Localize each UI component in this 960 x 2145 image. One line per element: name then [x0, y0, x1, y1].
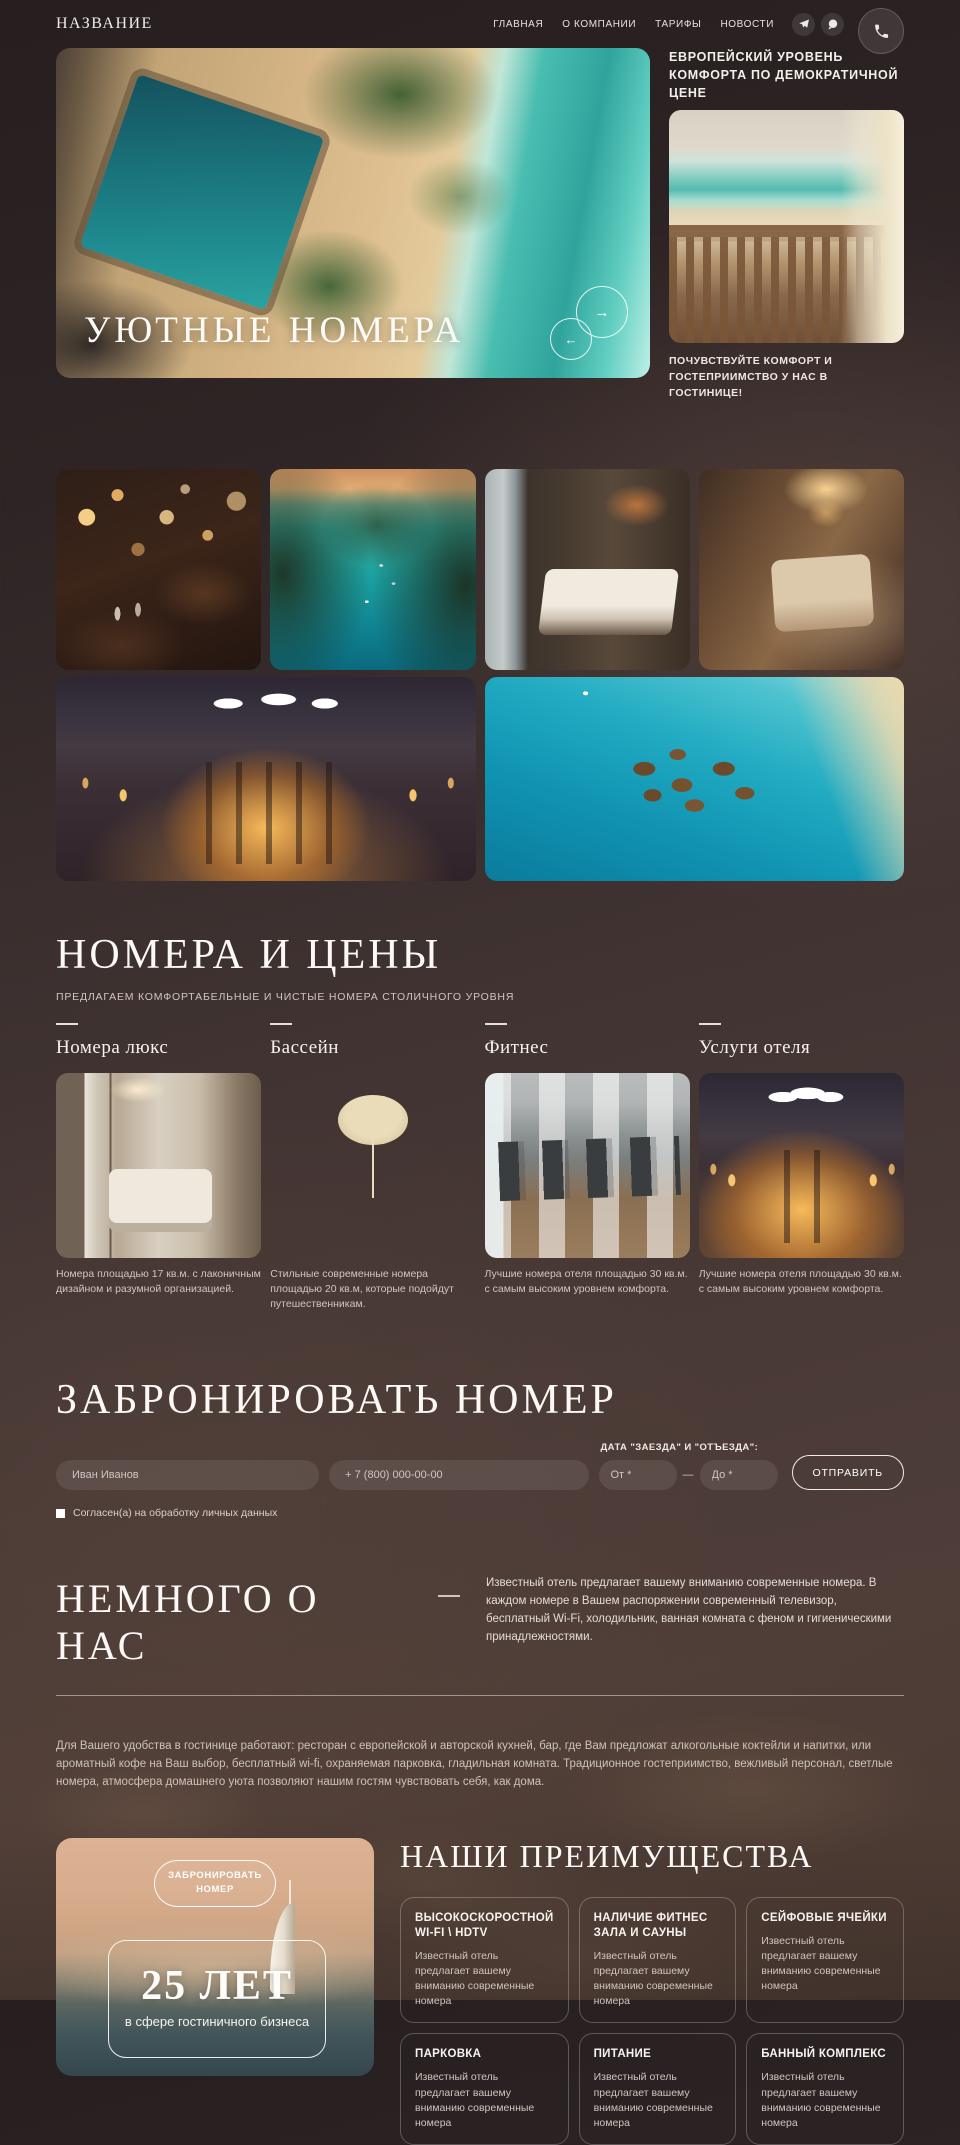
hero-right-title: ЕВРОПЕЙСКИЙ УРОВЕНЬ КОМФОРТА ПО ДЕМОКРАТ…: [669, 48, 904, 102]
gallery-row-1: [56, 469, 904, 670]
advantage-title: БАННЫЙ КОМПЛЕКС: [761, 2047, 889, 2062]
telegram-icon: [798, 18, 810, 30]
hero-right-column: ЕВРОПЕЙСКИЙ УРОВЕНЬ КОМФОРТА ПО ДЕМОКРАТ…: [669, 48, 904, 402]
advantage-card-fitness: НАЛИЧИЕ ФИТНЕС ЗАЛА И САУНЫ Известный от…: [579, 1897, 737, 2024]
room-cards: Номера люкс Номера площадью 17 кв.м. с л…: [56, 1023, 904, 1313]
date-to-input[interactable]: [700, 1460, 778, 1490]
nav-item-rates[interactable]: ТАРИФЫ: [655, 19, 701, 30]
advantages-section: НАШИ ПРЕИМУЩЕСТВА ВЫСОКОСКОРОСТНОЙ WI-FI…: [400, 1838, 904, 2145]
card-dash: [699, 1023, 721, 1025]
room-card-image-gym: [485, 1073, 690, 1258]
gallery-image-entrance[interactable]: [56, 677, 476, 881]
dates-label: ДАТА "ЗАЕЗДА" И "ОТЪЕЗДА":: [601, 1442, 778, 1453]
room-card-desc: Стильные современные номера площадью 20 …: [270, 1267, 475, 1313]
rooms-section: НОМЕРА И ЦЕНЫ ПРЕДЛАГАЕМ КОМФОРТАБЕЛЬНЫЕ…: [56, 931, 904, 1313]
booking-section: ЗАБРОНИРОВАТЬ НОМЕР ДАТА "ЗАЕЗДА" И "ОТЪ…: [56, 1376, 904, 1519]
advantage-title: НАЛИЧИЕ ФИТНЕС ЗАЛА И САУНЫ: [594, 1911, 722, 1941]
section-divider: [56, 1695, 904, 1696]
room-card-desc: Номера площадью 17 кв.м. с лаконичным ди…: [56, 1267, 261, 1297]
room-card-desc: Лучшие номера отеля площадью 30 кв.м. с …: [699, 1267, 904, 1297]
room-card-image-pool: [270, 1073, 475, 1258]
gallery-image-bedroom[interactable]: [485, 469, 690, 670]
whatsapp-button[interactable]: [821, 13, 844, 36]
about-dash: [438, 1595, 460, 1597]
submit-button[interactable]: ОТПРАВИТЬ: [792, 1455, 905, 1490]
telegram-button[interactable]: [792, 13, 815, 36]
advantage-desc: Известный отель предлагает вашему вниман…: [594, 1949, 722, 2010]
advantage-title: СЕЙФОВЫЕ ЯЧЕЙКИ: [761, 1911, 889, 1926]
pool-shape: [79, 74, 323, 309]
whatsapp-icon: [827, 18, 839, 30]
room-card-pool[interactable]: Бассейн Стильные современные номера площ…: [270, 1023, 475, 1313]
card-dash: [485, 1023, 507, 1025]
advantages-grid: ВЫСОКОСКОРОСТНОЙ WI-FI \ HDTV Известный …: [400, 1897, 904, 2145]
advantages-title: НАШИ ПРЕИМУЩЕСТВА: [400, 1838, 904, 1875]
header: НАЗВАНИЕ ГЛАВНАЯ О КОМПАНИИ ТАРИФЫ НОВОС…: [56, 0, 904, 48]
about-row: НЕМНОГО О НАС Известный отель предлагает…: [56, 1575, 904, 1669]
card-dash: [270, 1023, 292, 1025]
hero-slide-title: УЮТНЫЕ НОМЕРА: [84, 309, 464, 352]
phone-icon: [873, 23, 890, 40]
rooms-subtitle: ПРЕДЛАГАЕМ КОМФОРТАБЕЛЬНЫЕ И ЧИСТЫЕ НОМЕ…: [56, 991, 904, 1003]
advantage-desc: Известный отель предлагает вашему вниман…: [761, 1934, 889, 1995]
date-from-input[interactable]: [599, 1460, 677, 1490]
promo-book-button[interactable]: ЗАБРОНИРОВАТЬ НОМЕР: [154, 1860, 276, 1907]
advantage-desc: Известный отель предлагает вашему вниман…: [761, 2070, 889, 2131]
hero-right-caption: ПОЧУВСТВУЙТЕ КОМФОРТ И ГОСТЕПРИИМСТВО У …: [669, 354, 904, 401]
carousel-prev-button[interactable]: ←: [550, 318, 592, 360]
consent-row[interactable]: Согласен(а) на обработку личных данных: [56, 1507, 904, 1519]
social-buttons: [792, 13, 844, 36]
room-card-image-lux: [56, 1073, 261, 1258]
advantage-title: ВЫСОКОСКОРОСТНОЙ WI-FI \ HDTV: [415, 1911, 554, 1941]
advantage-desc: Известный отель предлагает вашему вниман…: [594, 2070, 722, 2131]
gallery-image-suite[interactable]: [699, 469, 904, 670]
room-card-title: Фитнес: [485, 1037, 690, 1059]
advantage-card-wifi: ВЫСОКОСКОРОСТНОЙ WI-FI \ HDTV Известный …: [400, 1897, 569, 2024]
advantage-card-food: ПИТАНИЕ Известный отель предлагает вашем…: [579, 2033, 737, 2145]
gallery: [56, 469, 904, 881]
promo-years-box: 25 ЛЕТ в сфере гостиничного бизнеса: [108, 1940, 326, 2058]
advantage-desc: Известный отель предлагает вашему вниман…: [415, 1949, 554, 2010]
about-lead: Известный отель предлагает вашему вниман…: [486, 1575, 904, 1646]
room-card-fitness[interactable]: Фитнес Лучшие номера отеля площадью 30 к…: [485, 1023, 690, 1313]
advantage-title: ПАРКОВКА: [415, 2047, 554, 2062]
gallery-image-lagoon[interactable]: [270, 469, 475, 670]
room-card-desc: Лучшие номера отеля площадью 30 кв.м. с …: [485, 1267, 690, 1297]
room-card-title: Услуги отеля: [699, 1037, 904, 1059]
gallery-row-2: [56, 677, 904, 881]
advantage-title: ПИТАНИЕ: [594, 2047, 722, 2062]
gallery-image-bungalows[interactable]: [485, 677, 905, 881]
nav-item-about[interactable]: О КОМПАНИИ: [562, 19, 636, 30]
dates-group: ДАТА "ЗАЕЗДА" И "ОТЪЕЗДА": —: [599, 1442, 778, 1490]
name-input[interactable]: [56, 1460, 319, 1490]
gallery-image-restaurant[interactable]: [56, 469, 261, 670]
date-range-separator: —: [683, 1469, 694, 1481]
room-card-title: Номера люкс: [56, 1037, 261, 1059]
page: НАЗВАНИЕ ГЛАВНАЯ О КОМПАНИИ ТАРИФЫ НОВОС…: [56, 0, 904, 2145]
consent-label: Согласен(а) на обработку личных данных: [73, 1507, 277, 1519]
card-dash: [56, 1023, 78, 1025]
promo-card: ЗАБРОНИРОВАТЬ НОМЕР 25 ЛЕТ в сфере гости…: [56, 1838, 374, 2076]
advantage-card-safe: СЕЙФОВЫЕ ЯЧЕЙКИ Известный отель предлага…: [746, 1897, 904, 2024]
advantage-card-parking: ПАРКОВКА Известный отель предлагает ваше…: [400, 2033, 569, 2145]
booking-form: ДАТА "ЗАЕЗДА" И "ОТЪЕЗДА": — ОТПРАВИТЬ: [56, 1442, 904, 1490]
site-logo[interactable]: НАЗВАНИЕ: [56, 15, 153, 33]
about-title: НЕМНОГО О НАС: [56, 1575, 406, 1669]
room-card-image-entrance: [699, 1073, 904, 1258]
nav-item-news[interactable]: НОВОСТИ: [720, 19, 774, 30]
header-right: ГЛАВНАЯ О КОМПАНИИ ТАРИФЫ НОВОСТИ: [493, 1, 904, 47]
nav-item-home[interactable]: ГЛАВНАЯ: [493, 19, 543, 30]
hero-section: УЮТНЫЕ НОМЕРА → ← ЕВРОПЕЙСКИЙ УРОВЕНЬ КО…: [56, 48, 904, 402]
balcony-image: [669, 110, 904, 343]
about-body: Для Вашего удобства в гостинице работают…: [56, 1738, 904, 1791]
booking-title: ЗАБРОНИРОВАТЬ НОМЕР: [56, 1376, 904, 1424]
bottom-section: ЗАБРОНИРОВАТЬ НОМЕР 25 ЛЕТ в сфере гости…: [56, 1838, 904, 2145]
consent-checkbox[interactable]: [56, 1509, 65, 1518]
dates-row: —: [599, 1460, 778, 1490]
about-section: НЕМНОГО О НАС Известный отель предлагает…: [56, 1575, 904, 1791]
hero-slide-image: УЮТНЫЕ НОМЕРА → ←: [56, 48, 650, 378]
rooms-title: НОМЕРА И ЦЕНЫ: [56, 931, 904, 979]
promo-years-caption: в сфере гостиничного бизнеса: [109, 2014, 325, 2029]
phone-input[interactable]: [329, 1460, 588, 1490]
promo-years: 25 ЛЕТ: [109, 1965, 325, 2007]
main-nav: ГЛАВНАЯ О КОМПАНИИ ТАРИФЫ НОВОСТИ: [493, 19, 774, 30]
room-card-title: Бассейн: [270, 1037, 475, 1059]
room-card-lux[interactable]: Номера люкс Номера площадью 17 кв.м. с л…: [56, 1023, 261, 1313]
advantage-card-bath: БАННЫЙ КОМПЛЕКС Известный отель предлага…: [746, 2033, 904, 2145]
call-button[interactable]: [858, 8, 904, 54]
advantage-desc: Известный отель предлагает вашему вниман…: [415, 2070, 554, 2131]
room-card-services[interactable]: Услуги отеля Лучшие номера отеля площадь…: [699, 1023, 904, 1313]
